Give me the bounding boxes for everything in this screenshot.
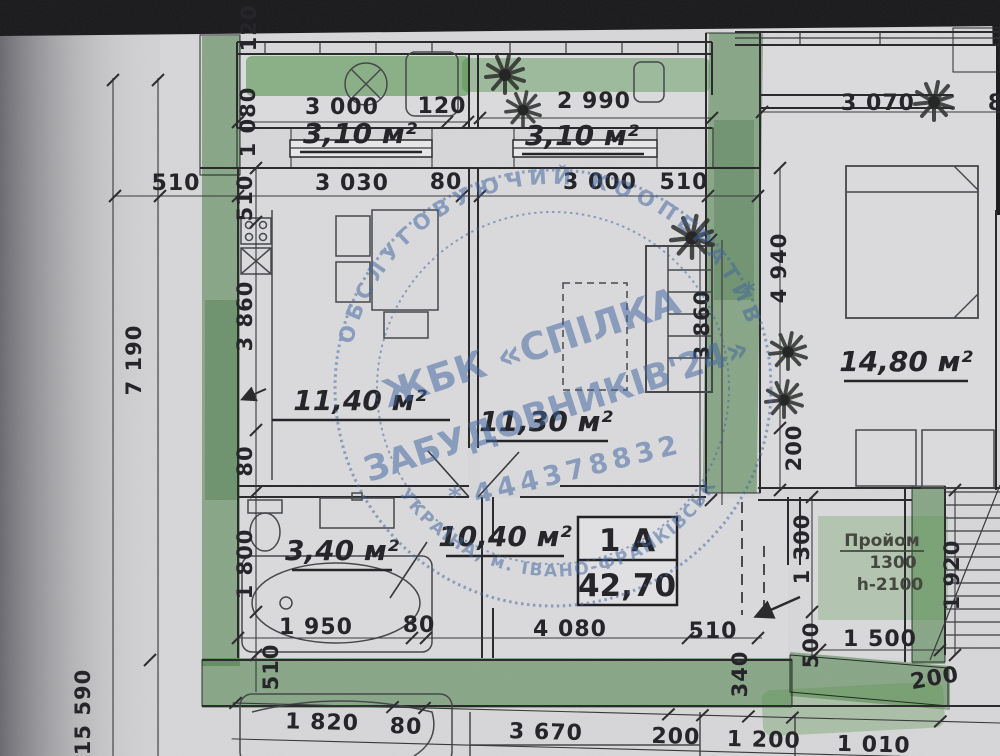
dim-510-upper-left: 510	[152, 171, 201, 196]
dim-7190: 7 190	[122, 325, 146, 396]
dim-200-bottom: 200	[651, 724, 701, 750]
room-label-neighbor-room: 14,80 м²	[839, 345, 973, 378]
dim-1300: 1 300	[790, 514, 814, 585]
dim-80-left: 80	[233, 445, 257, 476]
dim-80-lower: 80	[403, 613, 436, 638]
dim-510-lower: 510	[689, 619, 738, 644]
dim-1080: 1 080	[236, 87, 260, 158]
stamp-asterisk: *	[448, 482, 462, 512]
scanned-floor-plan: 120 1 080 3 000 120 2 990 3 070 8 510 3 …	[0, 0, 1000, 756]
dim-1950: 1 950	[279, 615, 353, 640]
dim-510-bottom-left: 510	[259, 644, 283, 691]
dim-200-right: 200	[782, 425, 806, 472]
dim-1920: 1 920	[940, 540, 964, 611]
dim-4940: 4 940	[767, 233, 791, 304]
opening-note-width: 1300	[869, 553, 916, 573]
dim-80-bottom: 80	[389, 714, 422, 740]
floor-plan-drawing: 120 1 080 3 000 120 2 990 3 070 8 510 3 …	[0, 0, 1000, 756]
dim-3860-left: 3 860	[233, 281, 257, 352]
dim-3030: 3 030	[315, 171, 389, 196]
room-label-balcony-1: 3,10 м²	[303, 117, 418, 150]
dim-2990: 2 990	[557, 89, 631, 114]
dim-3070: 3 070	[841, 91, 915, 116]
dim-120-top-edge: 120	[237, 5, 261, 52]
dim-1800: 1 800	[233, 529, 257, 600]
dim-1200: 1 200	[727, 727, 802, 754]
dim-4080: 4 080	[533, 617, 607, 642]
dim-510-left: 510	[233, 175, 257, 222]
opening-note-height: h-2100	[857, 575, 924, 595]
dim-340: 340	[728, 651, 752, 698]
dim-120-pier: 120	[418, 94, 467, 119]
dim-1010: 1 010	[836, 732, 911, 756]
opening-note-title: Пройом	[844, 531, 920, 551]
dim-510-upper-right: 510	[660, 170, 709, 195]
dim-8-clipped: 8	[988, 91, 1000, 116]
stamp-asterisk: *	[742, 277, 756, 307]
dim-15590: 15 590	[71, 669, 95, 755]
dim-3670: 3 670	[509, 719, 584, 746]
room-label-balcony-2: 3,10 м²	[525, 119, 640, 152]
room-label-bathroom: 3,40 м²	[285, 534, 400, 567]
dim-500: 500	[799, 622, 823, 669]
dim-1500: 1 500	[843, 627, 917, 652]
dim-1820: 1 820	[285, 709, 360, 736]
